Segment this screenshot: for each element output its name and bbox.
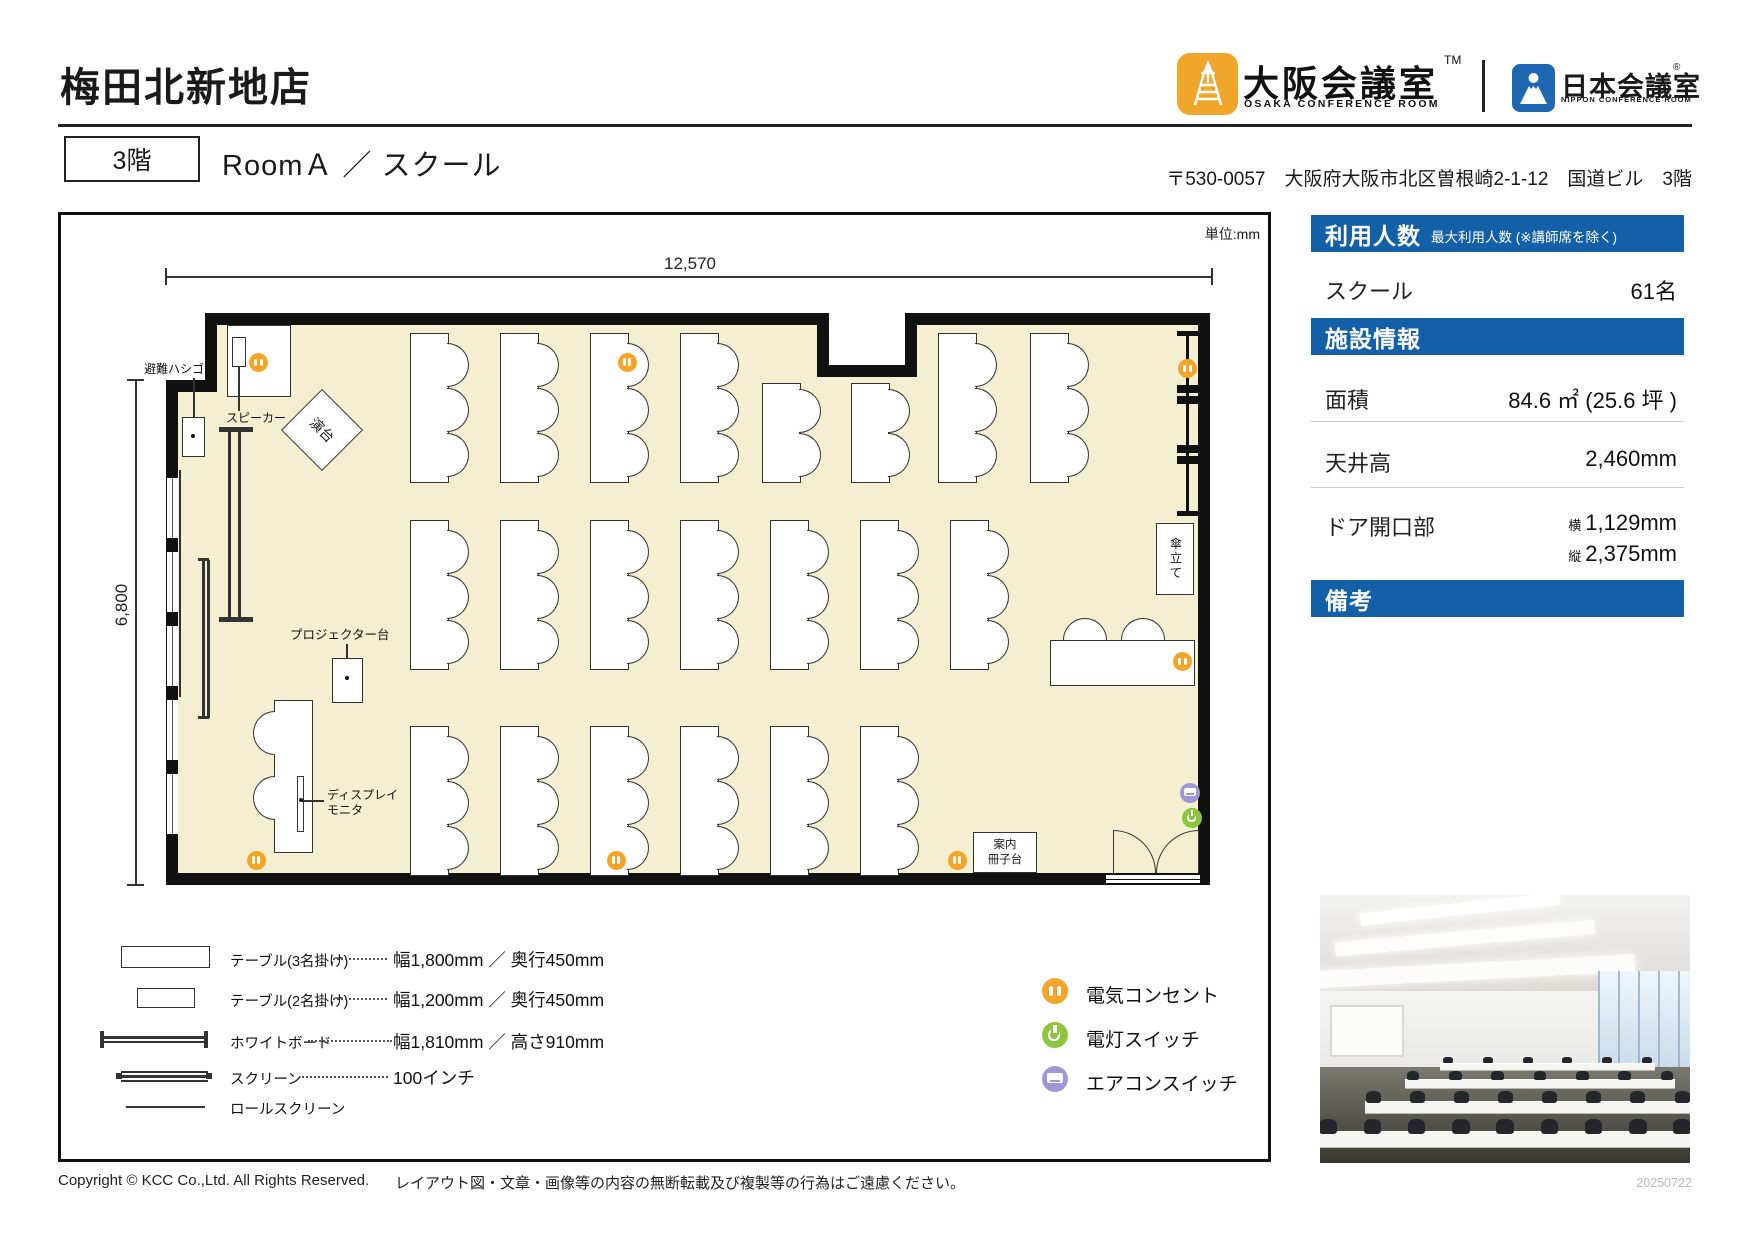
row-divider xyxy=(1311,421,1684,422)
light-switch-icon xyxy=(1042,1022,1068,1048)
table xyxy=(860,726,899,876)
legend-dots xyxy=(308,1026,392,1042)
window-segment xyxy=(167,478,178,538)
legend-value: 100インチ xyxy=(393,1065,475,1090)
capacity-note: 最大利用人数 (※講師席を除く) xyxy=(1431,222,1617,246)
photo-chair xyxy=(1366,1091,1381,1103)
dim-line-height xyxy=(135,380,137,885)
osaka-tower-icon xyxy=(1177,53,1238,115)
leader-line xyxy=(238,367,240,411)
leader-line xyxy=(302,800,324,802)
dim-width-label: 12,570 xyxy=(600,254,780,274)
ceiling-label: 天井高 xyxy=(1325,446,1391,478)
photo-chair xyxy=(1541,1119,1559,1134)
photo-chair xyxy=(1586,1091,1601,1103)
table xyxy=(410,726,449,876)
photo-chair xyxy=(1562,1057,1572,1063)
whiteboard xyxy=(228,432,231,617)
partition-block xyxy=(1177,396,1198,404)
wall-step-v xyxy=(205,313,217,392)
dim-tick xyxy=(127,379,144,381)
room-photo xyxy=(1320,895,1690,1163)
window-glazing xyxy=(172,626,174,686)
photo-chair xyxy=(1642,1057,1652,1063)
photo-chair xyxy=(1673,1119,1690,1134)
legend-screen-symbol xyxy=(206,1073,212,1079)
unit-note: 単位:mm xyxy=(1120,224,1260,244)
legend-whiteboard-symbol xyxy=(100,1031,104,1048)
photo-chair xyxy=(1534,1071,1547,1080)
table xyxy=(680,333,719,483)
whiteboard xyxy=(219,617,253,622)
legend-label: ロールスクリーン xyxy=(230,1098,345,1119)
aircon-switch-icon xyxy=(1180,783,1200,803)
photo-chair xyxy=(1576,1071,1589,1080)
outlet-icon xyxy=(1042,978,1068,1004)
window-segment xyxy=(167,700,178,760)
osaka-logo-subtext: OSAKA CONFERENCE ROOM xyxy=(1244,98,1440,110)
legend-rollscreen-symbol xyxy=(126,1106,205,1108)
osaka-logo-tm: TM xyxy=(1444,53,1461,67)
dim-tick xyxy=(165,268,167,285)
capacity-row-label: スクール xyxy=(1325,274,1413,306)
door-height-value: 縦2,375mm xyxy=(1568,541,1677,567)
legend-whiteboard-symbol xyxy=(104,1036,204,1039)
legend-icon-label: エアコンスイッチ xyxy=(1086,1069,1238,1096)
table xyxy=(500,333,539,483)
doc-date: 20250722 xyxy=(1636,1176,1692,1190)
notes-header-bar: 備考 xyxy=(1311,580,1684,617)
capacity-header-bar: 利用人数 最大利用人数 (※講師席を除く) xyxy=(1311,215,1684,252)
facility-header: 施設情報 xyxy=(1325,320,1421,354)
roll-screen xyxy=(179,470,181,697)
window-glazing xyxy=(172,552,174,612)
photo-chair xyxy=(1630,1091,1645,1103)
address-text: 〒530-0057 大阪府大阪市北区曽根崎2-1-12 国道ビル 3階 xyxy=(1166,164,1692,191)
projector-stand xyxy=(332,658,363,703)
table xyxy=(860,520,899,670)
photo-table xyxy=(1440,1063,1655,1071)
table xyxy=(410,520,449,670)
photo-chair xyxy=(1449,1071,1462,1080)
partition-block xyxy=(1177,456,1198,464)
room-title: RoomＡ ／ スクール xyxy=(222,142,501,184)
photo-chair xyxy=(1443,1057,1453,1063)
table xyxy=(950,520,989,670)
table xyxy=(938,333,977,483)
outlet-icon xyxy=(618,353,637,372)
leader-dot xyxy=(191,434,195,438)
notice-text: レイアウト図・文章・画像等の内容の無断転載及び複製等の行為はご遠慮ください。 xyxy=(395,1172,965,1193)
screen xyxy=(207,560,210,718)
table xyxy=(762,383,801,483)
window-glazing xyxy=(172,774,174,834)
booklet-stand: 案内 冊子台 xyxy=(973,832,1037,873)
outlet-icon xyxy=(948,851,967,870)
legend-table2-symbol xyxy=(137,988,195,1008)
projector-stand-label: プロジェクター台 xyxy=(290,628,390,644)
notes-header: 備考 xyxy=(1325,582,1373,616)
display-monitor xyxy=(297,776,304,832)
photo-chair xyxy=(1483,1057,1493,1063)
legend-screen-symbol xyxy=(121,1075,208,1078)
legend-value: 幅1,810mm ／ 高さ910mm xyxy=(393,1029,604,1054)
door-label: ドア開口部 xyxy=(1325,510,1435,542)
table xyxy=(1030,333,1069,483)
legend-dots xyxy=(333,984,387,1000)
photo-chair xyxy=(1542,1091,1557,1103)
leader-dot xyxy=(299,798,303,802)
legend-screen-symbol xyxy=(121,1071,208,1073)
table xyxy=(680,520,719,670)
nippon-logo-reg: ® xyxy=(1673,62,1680,73)
wall-right xyxy=(1198,313,1210,885)
table xyxy=(770,726,809,876)
photo-chair xyxy=(1629,1119,1647,1134)
partition-block xyxy=(1177,385,1198,393)
whiteboard xyxy=(219,427,253,432)
legend-label: テーブル(2名掛け) xyxy=(230,990,348,1011)
window-glazing xyxy=(172,700,174,760)
photo-chair xyxy=(1410,1091,1425,1103)
photo-chair xyxy=(1523,1057,1533,1063)
outlet-icon xyxy=(247,851,266,870)
table xyxy=(410,333,449,483)
photo-chair xyxy=(1491,1071,1504,1080)
window-segment xyxy=(167,552,178,612)
photo-chair xyxy=(1407,1071,1420,1080)
speaker xyxy=(232,337,246,367)
photo-chair xyxy=(1454,1091,1469,1103)
wall-bottom xyxy=(166,873,1106,885)
table xyxy=(680,726,719,876)
facility-header-bar: 施設情報 xyxy=(1311,318,1684,355)
partition-block xyxy=(1177,445,1198,453)
outlet-icon xyxy=(1178,359,1197,378)
photo-chair xyxy=(1320,1119,1337,1134)
table xyxy=(851,383,890,483)
photo-chair xyxy=(1498,1091,1513,1103)
photo-chair xyxy=(1661,1071,1674,1080)
window-segment xyxy=(167,626,178,686)
row-divider xyxy=(1311,487,1684,488)
umbrella-stand: 傘立て xyxy=(1156,523,1194,595)
dim-height-label: 6,800 xyxy=(112,545,132,665)
table xyxy=(770,520,809,670)
outlet-icon xyxy=(1173,652,1192,671)
photo-chair xyxy=(1496,1119,1514,1134)
leader-dot xyxy=(345,676,349,680)
speaker-label: スピーカー xyxy=(226,411,286,426)
area-value: 84.6 ㎡ (25.6 坪 ) xyxy=(1508,383,1677,415)
legend-dots xyxy=(333,944,387,960)
legend-screen-symbol xyxy=(121,1080,208,1082)
legend-value: 幅1,800mm ／ 奥行450mm xyxy=(393,947,604,972)
escape-ladder-label: 避難ハシゴ xyxy=(144,362,204,377)
wall-notch xyxy=(817,313,917,377)
legend-icon-label: 電灯スイッチ xyxy=(1086,1025,1200,1052)
photo-chair xyxy=(1408,1119,1426,1134)
photo-table xyxy=(1405,1079,1675,1089)
copyright-text: Copyright © KCC Co.,Ltd. All Rights Rese… xyxy=(58,1172,369,1189)
area-label: 面積 xyxy=(1325,383,1369,415)
legend-label: テーブル(3名掛け) xyxy=(230,950,348,971)
wall-top xyxy=(205,313,1210,325)
light-switch-icon xyxy=(1182,808,1202,828)
photo-chair xyxy=(1675,1091,1690,1103)
window-segment xyxy=(167,774,178,834)
aircon-switch-icon xyxy=(1042,1066,1068,1092)
door-width-value: 横1,129mm xyxy=(1568,510,1677,536)
dim-line-width xyxy=(166,276,1212,278)
floor-badge: 3階 xyxy=(64,136,200,182)
legend-screen-symbol xyxy=(116,1073,122,1079)
logo-divider xyxy=(1482,60,1485,112)
outlet-icon xyxy=(607,851,626,870)
legend-value: 幅1,200mm ／ 奥行450mm xyxy=(393,987,604,1012)
legend-whiteboard-symbol xyxy=(104,1041,204,1043)
lectern-label: 演台 xyxy=(305,413,339,447)
door-threshold xyxy=(1106,873,1200,885)
legend-label: スクリーン xyxy=(230,1068,302,1089)
photo-chair xyxy=(1618,1071,1631,1080)
capacity-header: 利用人数 xyxy=(1325,217,1421,251)
screen xyxy=(198,716,209,719)
dim-tick xyxy=(127,884,144,886)
partition-cap xyxy=(1177,511,1198,516)
legend-table3-symbol xyxy=(121,946,210,968)
whiteboard xyxy=(238,432,241,617)
capacity-row-value: 61名 xyxy=(1631,274,1677,306)
table xyxy=(590,520,629,670)
legend-icon-label: 電気コンセント xyxy=(1086,981,1219,1008)
legend-dots xyxy=(302,1062,388,1078)
photo-chair xyxy=(1602,1057,1612,1063)
table xyxy=(500,520,539,670)
screen xyxy=(202,560,205,718)
partition-cap xyxy=(1177,331,1198,336)
dim-tick xyxy=(1211,268,1213,285)
outlet-icon xyxy=(249,353,268,372)
header-divider xyxy=(58,124,1692,127)
photo-chair xyxy=(1452,1119,1470,1134)
table xyxy=(500,726,539,876)
page-title: 梅田北新地店 xyxy=(60,55,312,113)
window-glazing xyxy=(172,478,174,538)
photo-whiteboard xyxy=(1330,1005,1404,1057)
instructor-table xyxy=(274,700,313,853)
ceiling-value: 2,460mm xyxy=(1585,446,1677,472)
nippon-logo-subtext: NIPPON CONFERENCE ROOM xyxy=(1561,95,1692,104)
photo-chair xyxy=(1364,1119,1382,1134)
photo-chair xyxy=(1585,1119,1603,1134)
display-monitor-label: ディスプレイ モニタ xyxy=(327,788,398,818)
fuji-icon xyxy=(1512,64,1555,112)
legend-whiteboard-symbol xyxy=(204,1031,208,1048)
